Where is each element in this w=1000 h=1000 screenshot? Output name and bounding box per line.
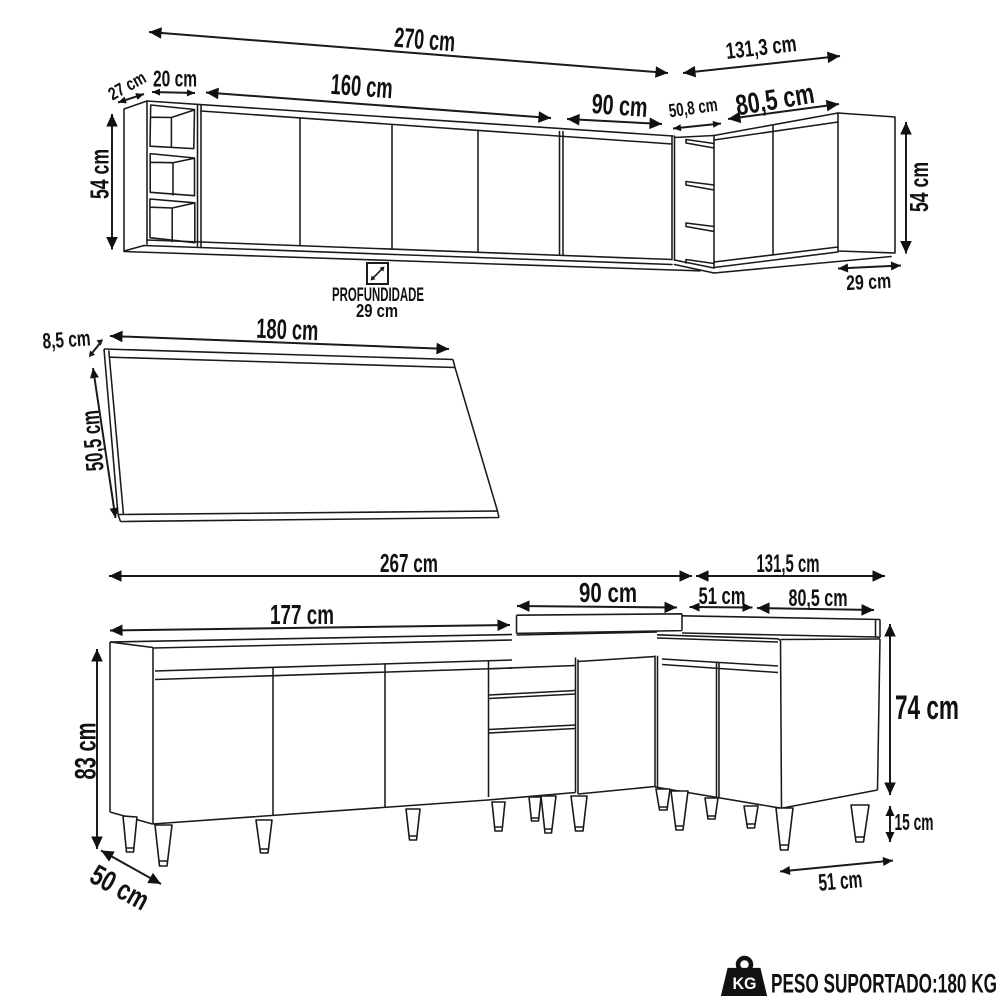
svg-text:15 cm: 15 cm <box>895 809 934 835</box>
svg-text:20 cm: 20 cm <box>153 66 197 92</box>
svg-text:80,5 cm: 80,5 cm <box>789 585 848 612</box>
svg-text:90 cm: 90 cm <box>579 577 637 608</box>
svg-text:54 cm: 54 cm <box>904 162 934 212</box>
svg-text:51 cm: 51 cm <box>699 583 746 610</box>
svg-text:8,5 cm: 8,5 cm <box>42 325 92 353</box>
svg-text:160 cm: 160 cm <box>330 69 394 105</box>
svg-text:90 cm: 90 cm <box>591 88 649 123</box>
svg-text:180 cm: 180 cm <box>256 313 319 346</box>
svg-text:83 cm: 83 cm <box>70 723 103 780</box>
svg-text:270 cm: 270 cm <box>393 22 456 58</box>
svg-text:PESO SUPORTADO:180 KG: PESO SUPORTADO:180 KG <box>771 969 997 999</box>
svg-text:74 cm: 74 cm <box>895 689 959 727</box>
svg-text:29 cm: 29 cm <box>846 270 892 295</box>
svg-text:50,5 cm: 50,5 cm <box>76 409 109 472</box>
svg-text:131,3 cm: 131,3 cm <box>724 30 797 64</box>
svg-text:50 cm: 50 cm <box>84 859 154 917</box>
svg-text:50,8 cm: 50,8 cm <box>668 95 719 123</box>
svg-text:51 cm: 51 cm <box>817 866 863 897</box>
svg-text:177 cm: 177 cm <box>270 599 334 630</box>
svg-text:80,5 cm: 80,5 cm <box>733 78 816 123</box>
svg-text:29 cm: 29 cm <box>356 301 398 321</box>
svg-text:131,5 cm: 131,5 cm <box>757 550 820 578</box>
svg-text:KG: KG <box>733 974 757 993</box>
svg-text:54 cm: 54 cm <box>85 149 115 199</box>
svg-text:267 cm: 267 cm <box>380 548 438 578</box>
